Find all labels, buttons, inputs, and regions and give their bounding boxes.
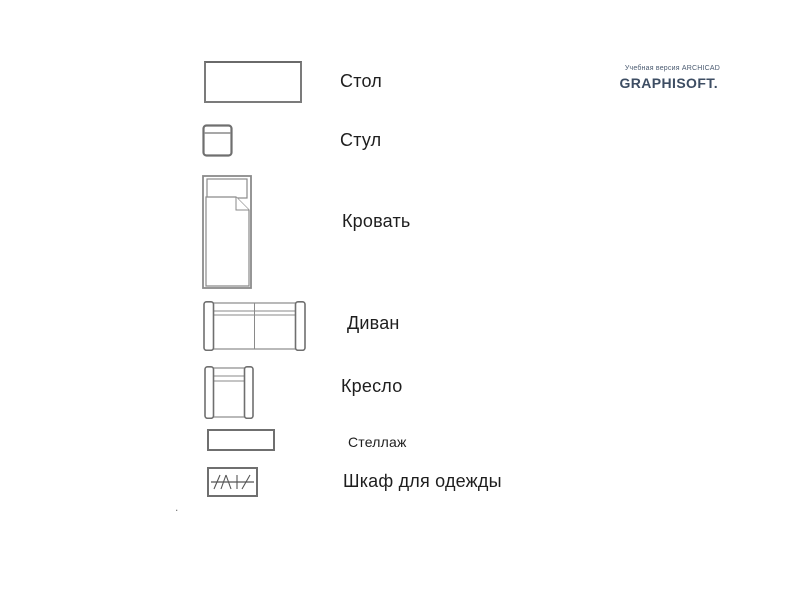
table-symbol-icon: [204, 61, 302, 103]
chair-symbol-icon: [202, 124, 233, 157]
stray-dot: .: [175, 501, 178, 513]
legend-label-wardrobe: Шкаф для одежды: [343, 472, 502, 490]
slide-canvas: Стол Стул Кровать Диван: [0, 0, 800, 600]
bed-symbol-icon: [202, 175, 252, 289]
legend-label-table: Стол: [340, 72, 382, 90]
legend-label-shelving: Стеллаж: [348, 435, 407, 449]
wardrobe-symbol-icon: [207, 467, 258, 497]
graphisoft-logo-text: GRAPHISOFT.: [600, 76, 720, 91]
armchair-symbol-icon: [204, 366, 254, 419]
archicad-watermark: Учебная версия ARCHICAD GRAPHISOFT.: [600, 64, 720, 91]
watermark-edu-version-text: Учебная версия ARCHICAD: [600, 64, 720, 73]
legend-label-bed: Кровать: [342, 212, 411, 230]
sofa-symbol-icon: [203, 301, 306, 351]
legend-label-chair: Стул: [340, 131, 381, 149]
shelving-symbol-icon: [207, 429, 275, 451]
legend-label-armchair: Кресло: [341, 377, 402, 395]
legend-label-sofa: Диван: [347, 314, 400, 332]
